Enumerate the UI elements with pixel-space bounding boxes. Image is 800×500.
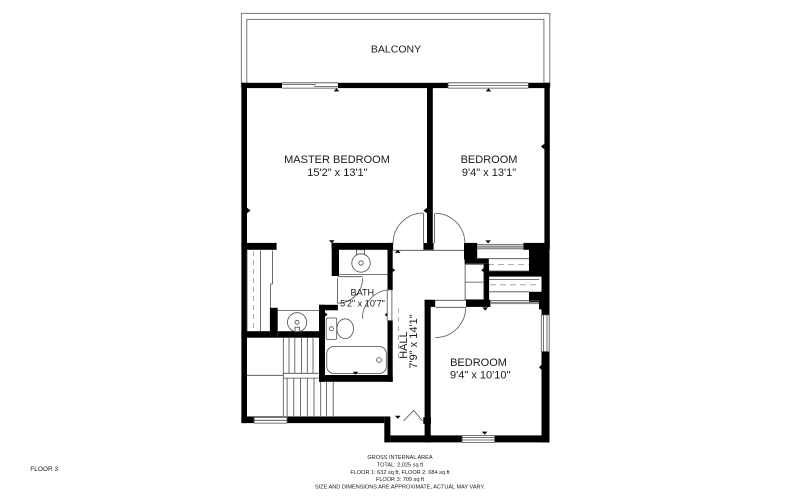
svg-text:FLOOR 1: 632 sq ft, FLOOR 2: 6: FLOOR 1: 632 sq ft, FLOOR 2: 684 sq ft xyxy=(350,470,450,476)
svg-text:5'2" x 10'7": 5'2" x 10'7" xyxy=(340,299,385,309)
svg-text:BEDROOM: BEDROOM xyxy=(461,154,518,166)
svg-text:TOTAL: 2,025 sq ft: TOTAL: 2,025 sq ft xyxy=(377,462,424,468)
svg-text:FLOOR 3: FLOOR 3 xyxy=(30,466,58,473)
svg-text:MASTER BEDROOM: MASTER BEDROOM xyxy=(284,154,390,166)
svg-text:9'4" x 13'1": 9'4" x 13'1" xyxy=(462,167,516,179)
svg-text:BALCONY: BALCONY xyxy=(371,44,421,56)
svg-text:GROSS INTERNAL AREA: GROSS INTERNAL AREA xyxy=(367,455,432,461)
svg-text:BEDROOM: BEDROOM xyxy=(450,357,507,369)
svg-text:7'9" x 14'1": 7'9" x 14'1" xyxy=(408,314,420,368)
svg-text:9'4" x 10'10": 9'4" x 10'10" xyxy=(450,369,510,381)
svg-text:BATH: BATH xyxy=(351,288,375,298)
svg-text:FLOOR 3: 709 sq ft: FLOOR 3: 709 sq ft xyxy=(376,477,425,483)
svg-text:SIZE AND DIMENSIONS ARE APPROX: SIZE AND DIMENSIONS ARE APPROXIMATE, ACT… xyxy=(315,485,485,491)
svg-text:15'2" x 13'1": 15'2" x 13'1" xyxy=(307,167,367,179)
